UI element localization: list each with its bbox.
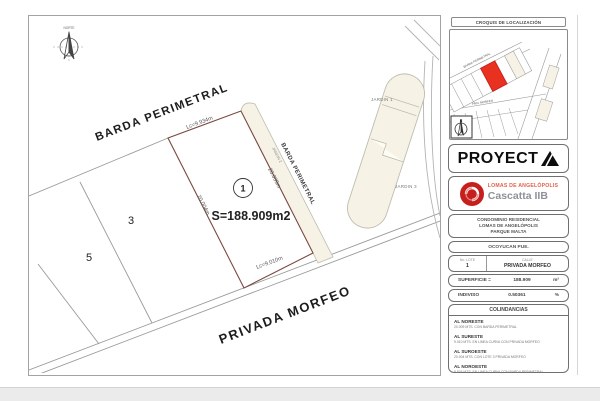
privada-morfeo-label: PRIVADA MORFEO (217, 283, 353, 347)
municipio-box: OCOYUCAN PUE. (448, 241, 569, 253)
jardin3-label: JARDIN 3 (395, 184, 417, 189)
colindancia-item: AL NOROESTE 9.934 MTS. EN LINEA CURVA CO… (454, 364, 563, 374)
garden-island (342, 69, 429, 234)
street-header: CALLE (522, 258, 533, 262)
superficie-value: 188.909 (513, 278, 530, 283)
condominio-box: CONDOMINIO RESIDENCIAL LOMAS DE ANGELÓPO… (448, 214, 569, 238)
street-value: PRIVADA MORFEO (504, 263, 551, 269)
colindancia-heading: AL SUROESTE (454, 349, 563, 354)
proyecta-logo-box: PROYECT (448, 144, 569, 173)
lot5-number: 5 (86, 252, 92, 264)
page-edge-divider (577, 15, 578, 375)
north-arrow-icon: NORTE (53, 26, 85, 63)
superficie-unit: m² (553, 278, 559, 283)
indiviso-row: INDIVISO 0.50361 % (448, 289, 569, 302)
plan-sheet: NORTE (0, 0, 600, 400)
lot-number-header: No. LOTE (460, 258, 475, 262)
main-plan-frame: NORTE (28, 15, 441, 376)
lot1-area-label: S=188.909m2 (212, 209, 291, 223)
street-cell: CALLE PRIVADA MORFEO (486, 256, 568, 271)
colindancia-item: AL SUROESTE 20.004 MTS. CON LOTE 3 PRIVA… (454, 349, 563, 359)
colindancias-box: COLINDANCIAS AL NORESTE 20.009 MTS. CON … (448, 304, 569, 373)
colindancia-heading: AL NOROESTE (454, 364, 563, 369)
colindancia-item: AL SURESTE 9.010 MTS. EN LINEA CURVA CON… (454, 334, 563, 344)
colindancia-heading: AL NORESTE (454, 319, 563, 324)
croquis-header: CROQUIS DE LOCALIZACIÓN (451, 17, 566, 27)
colindancia-detail: 9.934 MTS. EN LINEA CURVA CON BARDA PERI… (454, 370, 563, 374)
croquis-map: BARDA PERIMETRAL PRIV. MORFEO N (449, 29, 568, 140)
colindancia-detail: 20.009 MTS. CON BARDA PERIMETRAL (454, 325, 563, 329)
lot-number-cell: No. LOTE 1 (449, 256, 486, 271)
municipio-label: OCOYUCAN PUE. (488, 245, 529, 250)
cascatta-swirl-icon (459, 181, 485, 207)
colindancias-title: COLINDANCIAS (449, 305, 568, 316)
cascatta-line2: Cascatta IIB (488, 190, 558, 202)
lot-number-value: 1 (466, 263, 469, 269)
title-block-panel: CROQUIS DE LOCALIZACIÓN (446, 15, 573, 375)
proyecta-triangle-icon (541, 151, 559, 166)
croquis-title: CROQUIS DE LOCALIZACIÓN (476, 20, 541, 25)
indiviso-value: 0.50361 (508, 293, 525, 298)
jardin1-label: JARDIN 1 (371, 97, 393, 102)
colindancia-item: AL NORESTE 20.009 MTS. CON BARDA PERIMET… (454, 319, 563, 329)
lot1-number: 1 (240, 184, 245, 194)
indiviso-unit: % (555, 293, 559, 298)
minimap-north-arrow-icon: N (451, 116, 472, 138)
footer-bar (0, 387, 600, 401)
proyecta-wordmark: PROYECT (458, 150, 539, 168)
lot-street-table: No. LOTE 1 CALLE PRIVADA MORFEO (448, 255, 569, 272)
site-plan-drawing: NORTE (29, 16, 440, 373)
condominio-line3: PARQUE MALTA (491, 229, 527, 235)
lot3-number: 3 (128, 215, 134, 227)
location-sketch: BARDA PERIMETRAL PRIV. MORFEO N (450, 30, 567, 139)
colindancia-detail: 9.010 MTS. EN LINEA CURVA CON PRIVADA MO… (454, 340, 563, 344)
superficie-label: SUPERFICIE = (458, 278, 491, 283)
colindancia-detail: 20.004 MTS. CON LOTE 3 PRIVADA MORFEO (454, 355, 563, 359)
colindancias-list: AL NORESTE 20.009 MTS. CON BARDA PERIMET… (449, 316, 568, 382)
north-label: NORTE (63, 26, 74, 30)
cascatta-logo-box: LOMAS DE ANGELÓPOLIS Cascatta IIB (448, 176, 569, 211)
indiviso-label: INDIVISO (458, 293, 479, 298)
colindancia-heading: AL SURESTE (454, 334, 563, 339)
superficie-row: SUPERFICIE = 188.909 m² (448, 274, 569, 287)
